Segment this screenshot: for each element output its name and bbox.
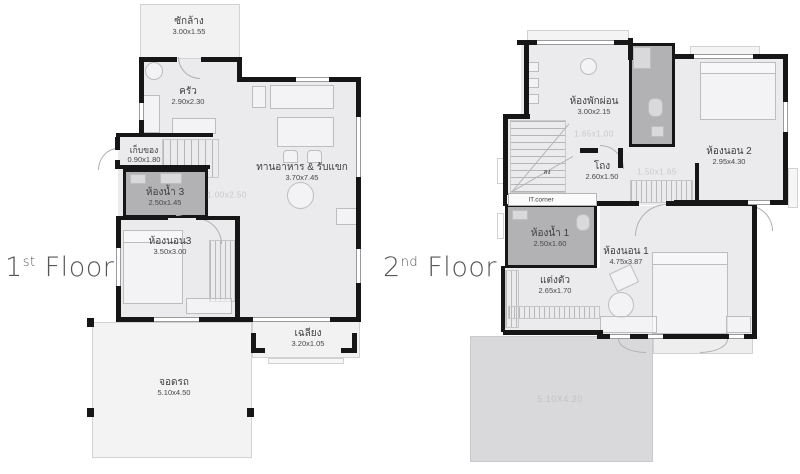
room-label-carport: จอดรถ 5.10x4.50 — [158, 376, 191, 398]
bed1-pillow — [652, 252, 728, 265]
room-label-bath3: ห้องน้ำ 3 2.50x1.45 — [146, 186, 184, 208]
porch-step — [268, 358, 344, 364]
toilet — [576, 214, 590, 231]
room-dim: 2.50x1.45 — [146, 199, 184, 208]
room-label-bed3: ห้องนอน3 3.50x3.00 — [149, 235, 192, 257]
roof-dim-annotation: 5.10X4.20 — [537, 394, 583, 404]
room-label-family: ห้องพักผ่อน 3.00x2.15 — [570, 95, 619, 117]
round-table — [580, 58, 597, 75]
wall-segment — [618, 148, 623, 168]
bed1-chair — [608, 292, 634, 318]
floor-1-title: 1st Floor — [5, 252, 114, 283]
wall-segment — [139, 57, 144, 103]
wall-segment — [356, 177, 361, 249]
floor-word: Floor — [427, 252, 497, 283]
wall-segment — [330, 317, 361, 322]
wall-segment — [695, 163, 699, 205]
wall-segment — [630, 334, 648, 339]
wall-segment — [503, 114, 508, 195]
carport-post — [87, 318, 94, 327]
bath3-counter — [160, 173, 182, 184]
wall-segment — [199, 317, 241, 322]
room-label-bath1: ห้องน้ำ 1 2.50x1.60 — [531, 227, 569, 249]
floor-plan-canvas: ซักล้าง 3.00x1.55 ครัว 2.90x2.30 เก็บของ… — [0, 0, 800, 474]
room-dim: 3.20x1.05 — [292, 340, 325, 349]
room-label-storage: เก็บของ 0.90x1.80 — [128, 145, 161, 165]
wall-segment — [241, 317, 253, 322]
stairs-down-label: ลง — [543, 167, 550, 177]
wall-segment — [116, 286, 121, 321]
wall-segment — [115, 137, 120, 150]
kitchen-counter — [143, 95, 160, 133]
wall-segment — [251, 348, 265, 353]
room-dim: 3.00x2.15 — [570, 108, 619, 117]
room-dim: 2.95x4.30 — [706, 158, 752, 167]
dressing-closet — [505, 270, 519, 328]
wall-segment — [597, 201, 639, 206]
floor-ordinal: nd — [401, 255, 419, 270]
room-dim: 3.00x1.55 — [173, 28, 206, 37]
room-label-bed1: ห้องนอน 1 4.75x3.87 — [603, 245, 649, 267]
dressing-closet — [508, 306, 600, 319]
bath-sink — [512, 210, 528, 220]
wall-segment — [341, 348, 357, 353]
kitchen-sink — [145, 62, 163, 80]
room-dim: 5.10x4.50 — [158, 389, 191, 398]
window — [537, 40, 614, 45]
bath-sink — [651, 126, 664, 137]
wall-segment — [674, 54, 694, 59]
tv-cabinet — [336, 208, 358, 225]
floor-2-title: 2nd Floor — [383, 252, 497, 283]
window — [610, 334, 630, 339]
window — [356, 249, 361, 283]
sofa — [270, 85, 334, 109]
room-label-dressing: แต่งตัว 2.65x1.70 — [539, 274, 572, 296]
floor-number: 2 — [383, 252, 401, 283]
window — [116, 248, 121, 286]
window-box — [497, 213, 504, 239]
shower-tray — [633, 47, 651, 69]
room-label-living: ทานอาหาร & รับแขก 3.70x7.45 — [256, 161, 348, 183]
wall-segment — [744, 334, 757, 339]
wall-segment — [783, 132, 788, 204]
closet-dim-annotation: 1.50x1.65 — [637, 168, 677, 177]
wall-segment — [262, 77, 296, 82]
wall-segment — [116, 165, 210, 169]
floor-word: Floor — [45, 252, 115, 283]
wall-segment — [524, 40, 529, 118]
floor-number: 1 — [5, 252, 23, 283]
it-corner-label: IT.corner — [528, 197, 553, 204]
wall-segment — [235, 216, 240, 321]
wall-segment — [666, 201, 756, 206]
stove — [172, 118, 216, 134]
wall-segment — [503, 330, 603, 335]
room-dim: 2.65x1.70 — [539, 287, 572, 296]
bath3-sink — [130, 174, 146, 184]
carport-post — [247, 408, 254, 417]
wall-segment — [783, 54, 788, 102]
window — [729, 334, 744, 339]
dining-table — [277, 117, 334, 147]
wall-segment — [501, 266, 505, 332]
bed1-cabinet — [600, 316, 657, 333]
room-label-laundry: ซักล้าง 3.00x1.55 — [173, 15, 206, 37]
room-dim: 3.50x3.00 — [149, 248, 192, 257]
wall-segment — [580, 148, 598, 153]
wall-segment — [196, 216, 240, 220]
wall-segment — [116, 216, 121, 248]
room-dim: 4.75x3.87 — [603, 258, 649, 267]
balcony-door — [748, 200, 770, 205]
window — [648, 334, 663, 339]
room-label-porch: เฉลียง 3.20x1.05 — [292, 327, 325, 349]
window — [356, 117, 361, 177]
sliding-door — [253, 317, 330, 322]
wall-segment — [237, 77, 265, 82]
room-label-kitchen: ครัว 2.90x2.30 — [172, 85, 205, 107]
window — [783, 102, 788, 132]
wall-segment — [752, 201, 757, 338]
room-dim: 2.90x2.30 — [172, 98, 205, 107]
window — [296, 77, 329, 82]
bed3-desk — [186, 298, 232, 314]
room-dim: 2.50x1.60 — [531, 240, 569, 249]
room-dim: 3.70x7.45 — [256, 174, 348, 183]
door-arc — [747, 205, 773, 231]
stair-dim-annotation: 1.65x1.00 — [574, 130, 614, 139]
wall-segment — [356, 77, 361, 117]
window — [154, 317, 199, 322]
wall-segment — [770, 200, 788, 205]
wall-segment — [116, 133, 213, 137]
wall-segment — [116, 317, 154, 322]
window — [694, 54, 753, 59]
side-table — [252, 86, 266, 108]
room-dim: 2.60x1.50 — [586, 173, 619, 182]
stair-dim-annotation: 1.00x2.50 — [207, 191, 247, 200]
floor-ordinal: st — [23, 255, 36, 270]
room-label-hall: โถง 2.60x1.50 — [586, 160, 619, 182]
carport-post — [87, 408, 94, 417]
room-label-bed2: ห้องนอน 2 2.95x4.30 — [706, 145, 752, 167]
wall-segment — [116, 216, 168, 220]
armchair — [287, 182, 314, 209]
bed2-pillow — [700, 62, 776, 74]
balcony — [788, 168, 798, 208]
bed1-cabinet — [726, 316, 751, 333]
wall-segment — [663, 334, 729, 339]
wall-segment — [139, 57, 177, 62]
wall-segment — [201, 57, 242, 62]
wall-segment — [628, 38, 633, 60]
window — [139, 103, 144, 120]
wall-segment — [503, 193, 507, 206]
room-dim: 0.90x1.80 — [128, 156, 161, 165]
bed3-closet — [209, 240, 235, 302]
